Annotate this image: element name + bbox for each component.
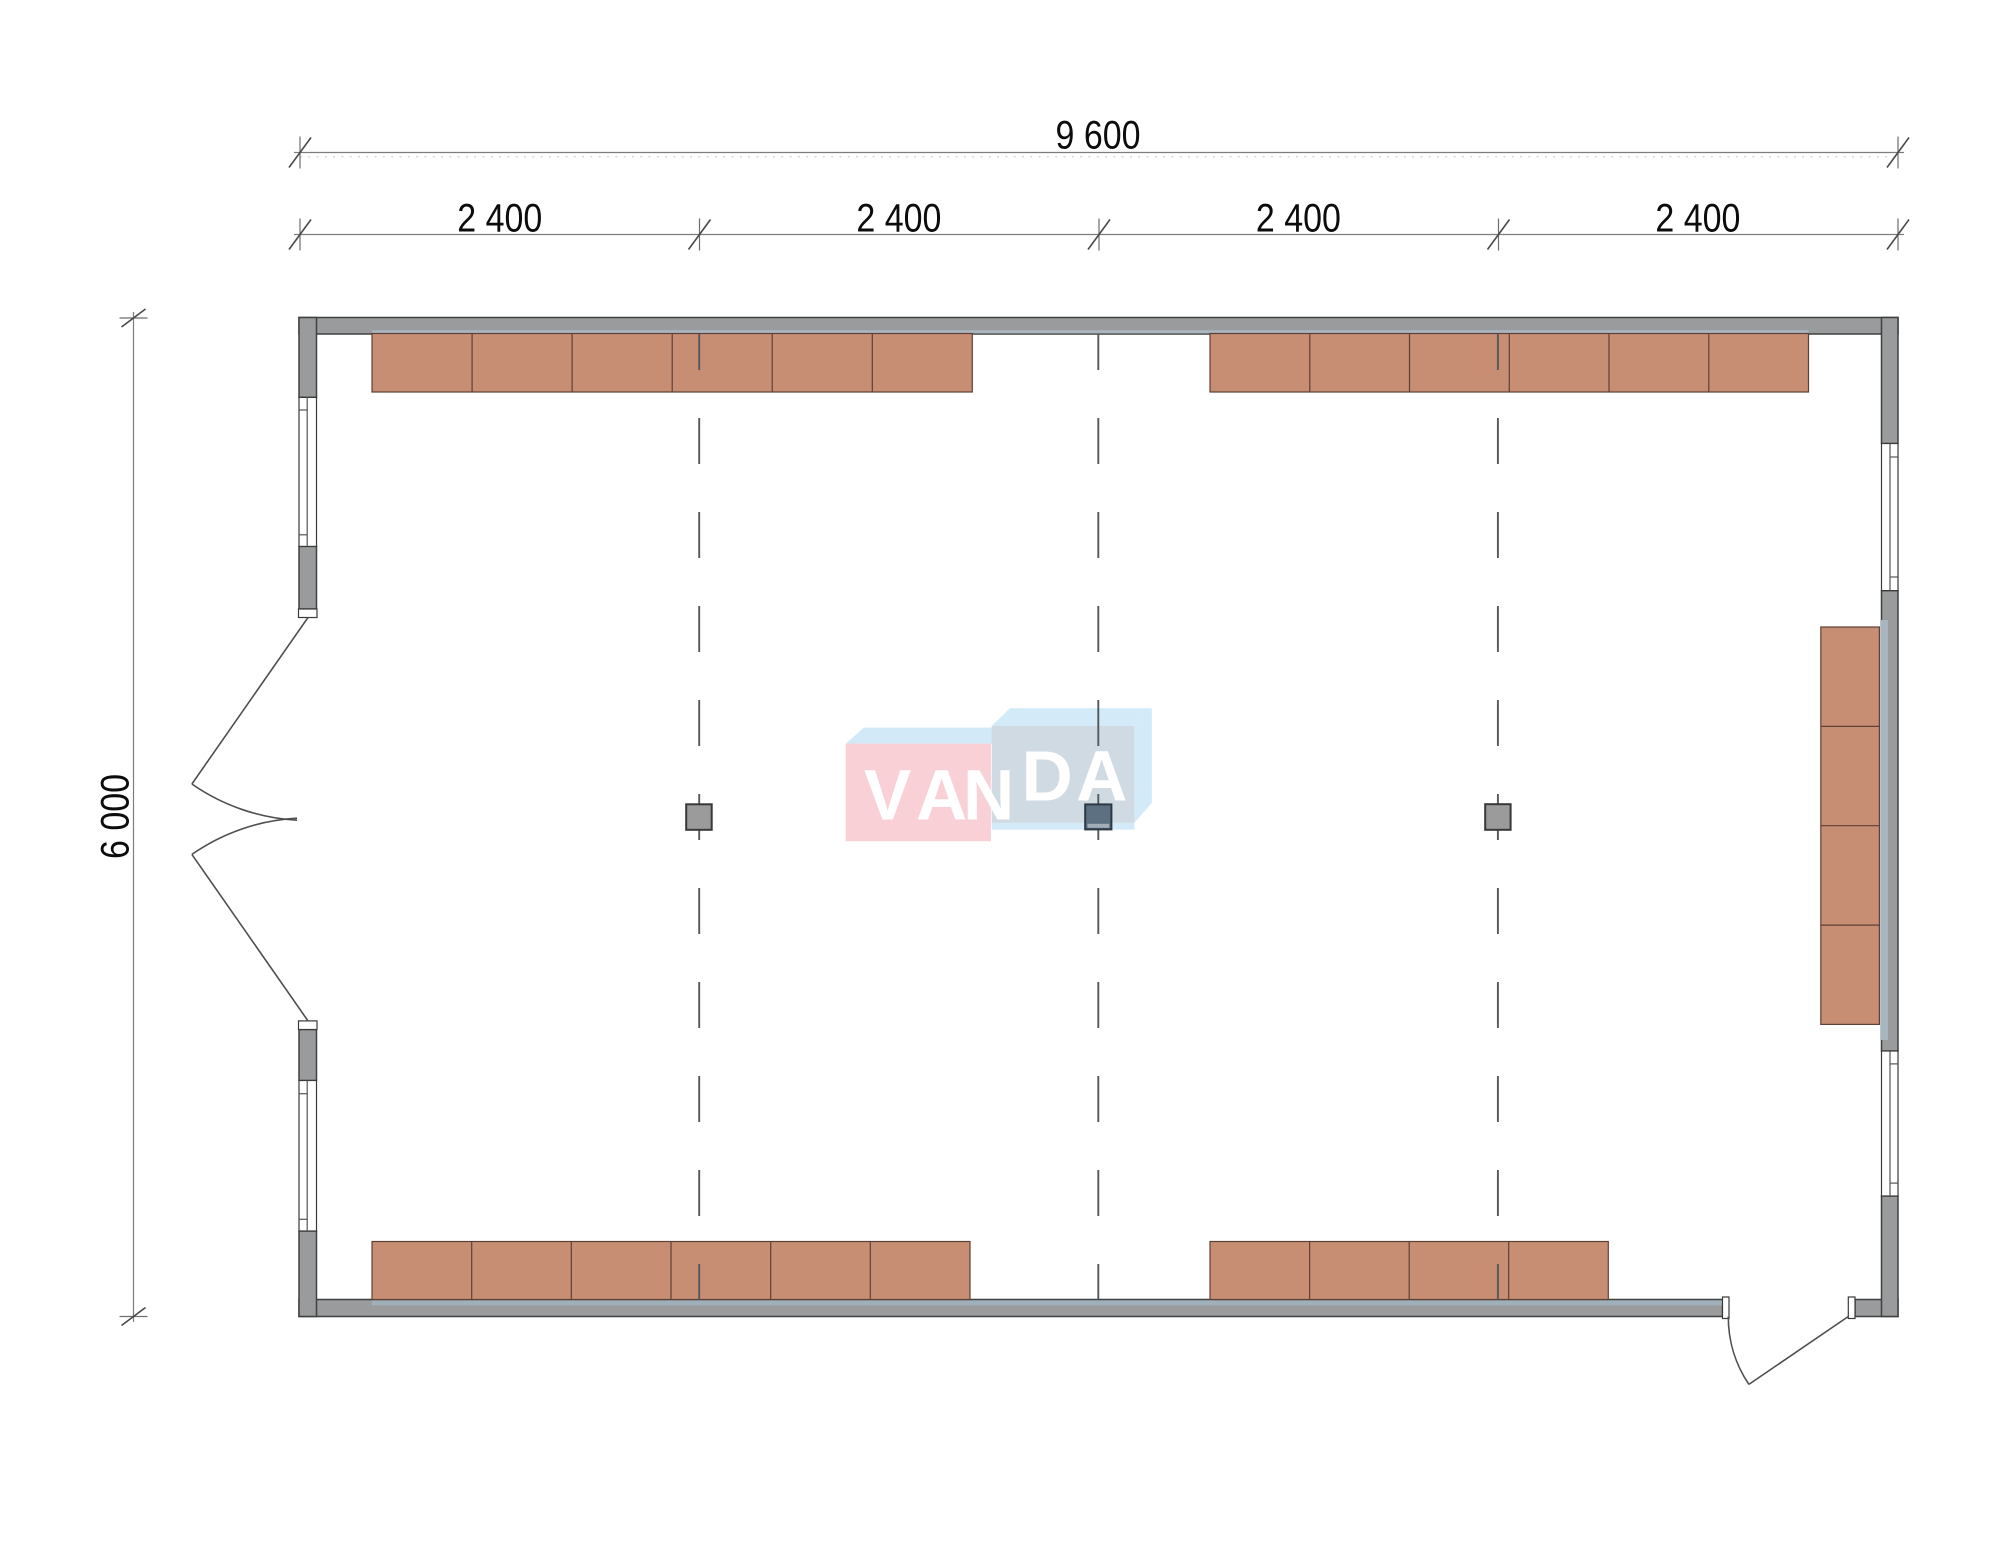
svg-text:6 000: 6 000: [94, 774, 138, 859]
svg-text:V: V: [864, 757, 911, 836]
svg-text:2 400: 2 400: [1655, 197, 1740, 241]
svg-text:N: N: [963, 757, 1014, 836]
svg-text:2 400: 2 400: [1256, 197, 1341, 241]
svg-text:2 400: 2 400: [457, 197, 542, 241]
svg-text:9 600: 9 600: [1056, 114, 1141, 158]
svg-text:2 400: 2 400: [856, 197, 941, 241]
svg-text:A: A: [916, 757, 967, 836]
svg-text:D: D: [1022, 738, 1073, 817]
